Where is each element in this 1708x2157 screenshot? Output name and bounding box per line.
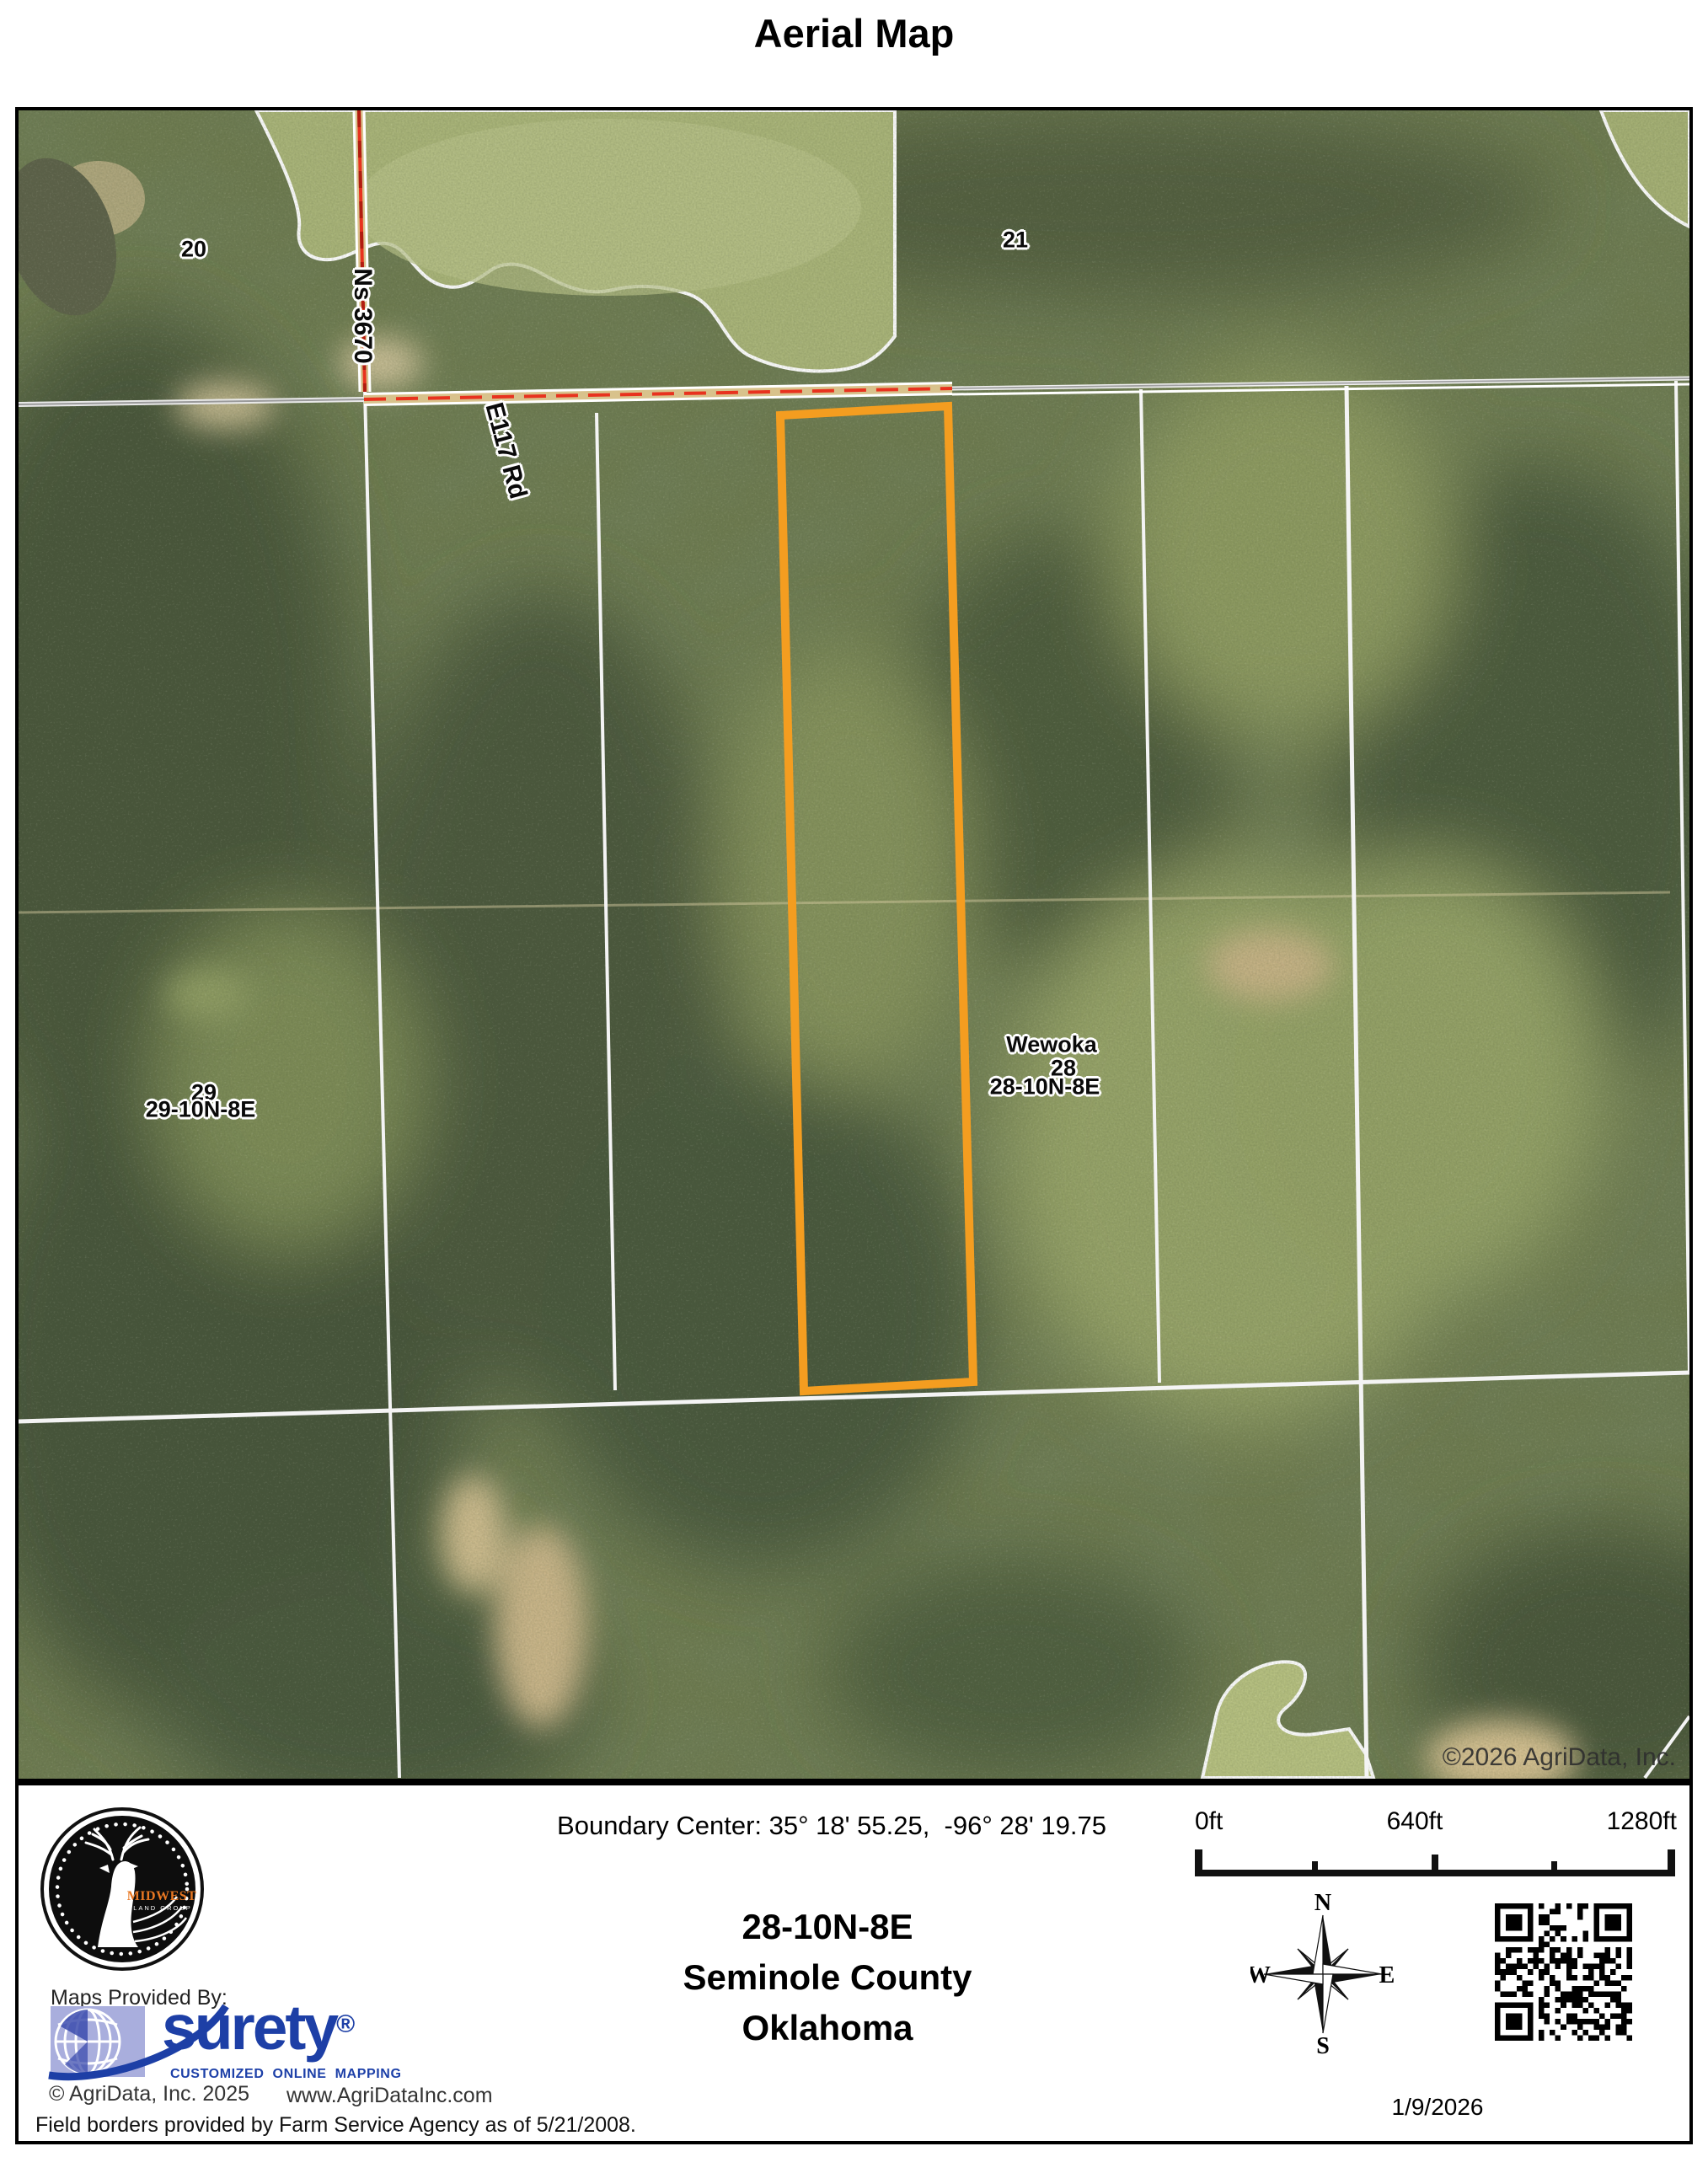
compass-s: S [1316, 2033, 1330, 2057]
map-date: 1/9/2026 [1365, 2094, 1510, 2121]
location-block: 28-10N-8E Seminole County Oklahoma [490, 1902, 1165, 2053]
midwest-land-group-logo: MIDWEST LAND GROUP [39, 1806, 206, 1972]
aerial-imagery [19, 110, 1689, 1779]
midwest-logo-sub: LAND GROUP [133, 1904, 192, 1912]
compass-n: N [1314, 1892, 1331, 1916]
compass-rose: N S E W [1250, 1892, 1395, 2057]
map-copyright: ©2026 AgriData, Inc. [1443, 1743, 1676, 1772]
agridata-copyright: © AgriData, Inc. 2025 [49, 2082, 249, 2106]
surety-logo: surety® [162, 1988, 355, 2059]
surety-tagline: CUSTOMIZED ONLINE MAPPING [170, 2067, 402, 2082]
aerial-map-page: Aerial Map [0, 0, 1708, 2157]
compass-w: W [1250, 1962, 1271, 1988]
qr-code [1495, 1903, 1632, 2041]
section-label-20: 20 [181, 237, 206, 263]
section-label-21: 21 [1003, 227, 1028, 254]
location-trs: 28-10N-8E [490, 1902, 1165, 1952]
surety-registered-mark: ® [336, 2010, 355, 2038]
trs-label-28: 28-10N-8E [990, 1074, 1100, 1100]
compass-e: E [1379, 1962, 1395, 1988]
scale-tick-640: 640ft [1387, 1807, 1443, 1836]
scale-bar [1195, 1844, 1677, 1881]
road-label-ns3670: Ns 3670 [348, 268, 377, 363]
scale-labels: 0ft 640ft 1280ft [1195, 1807, 1677, 1836]
location-county: Seminole County [490, 1952, 1165, 2003]
agridata-url: www.AgriDataInc.com [286, 2084, 493, 2108]
info-panel: Boundary Center: 35° 18' 55.25, -96° 28'… [15, 1782, 1693, 2144]
scale-tick-0: 0ft [1195, 1807, 1223, 1836]
surety-logo-text: surety [162, 1992, 336, 2063]
midwest-logo-name: MIDWEST [127, 1889, 197, 1903]
location-state: Oklahoma [490, 2003, 1165, 2053]
field-borders-note: Field borders provided by Farm Service A… [35, 2113, 636, 2138]
town-label-wewoka: Wewoka [1006, 1032, 1097, 1058]
page-title: Aerial Map [0, 10, 1708, 56]
aerial-map: 20 21 Ns 3670 E117 Rd Wewoka 28 28-10N-8… [15, 107, 1693, 1782]
scale-tick-1280: 1280ft [1607, 1807, 1677, 1836]
trs-label-29: 29-10N-8E [146, 1097, 256, 1123]
